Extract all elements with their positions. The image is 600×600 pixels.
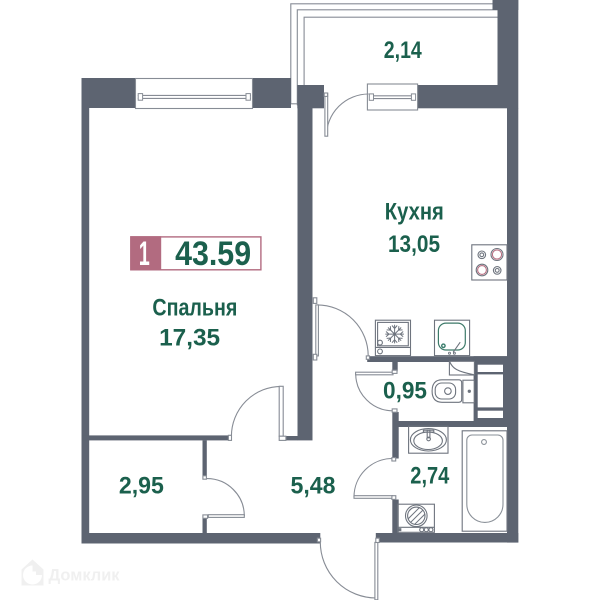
svg-text:13,05: 13,05 (388, 231, 440, 258)
svg-text:5,48: 5,48 (291, 472, 336, 499)
svg-text:2,74: 2,74 (410, 462, 450, 489)
svg-text:0,95: 0,95 (383, 377, 427, 404)
svg-text:43.59: 43.59 (175, 235, 251, 273)
svg-text:2,95: 2,95 (119, 472, 164, 499)
svg-text:1: 1 (139, 235, 150, 273)
svg-text:Кухня: Кухня (385, 199, 444, 226)
svg-text:Спальня: Спальня (152, 294, 237, 321)
svg-text:2,14: 2,14 (384, 37, 423, 64)
svg-text:Домклик: Домклик (49, 566, 120, 585)
svg-text:17,35: 17,35 (159, 325, 220, 352)
